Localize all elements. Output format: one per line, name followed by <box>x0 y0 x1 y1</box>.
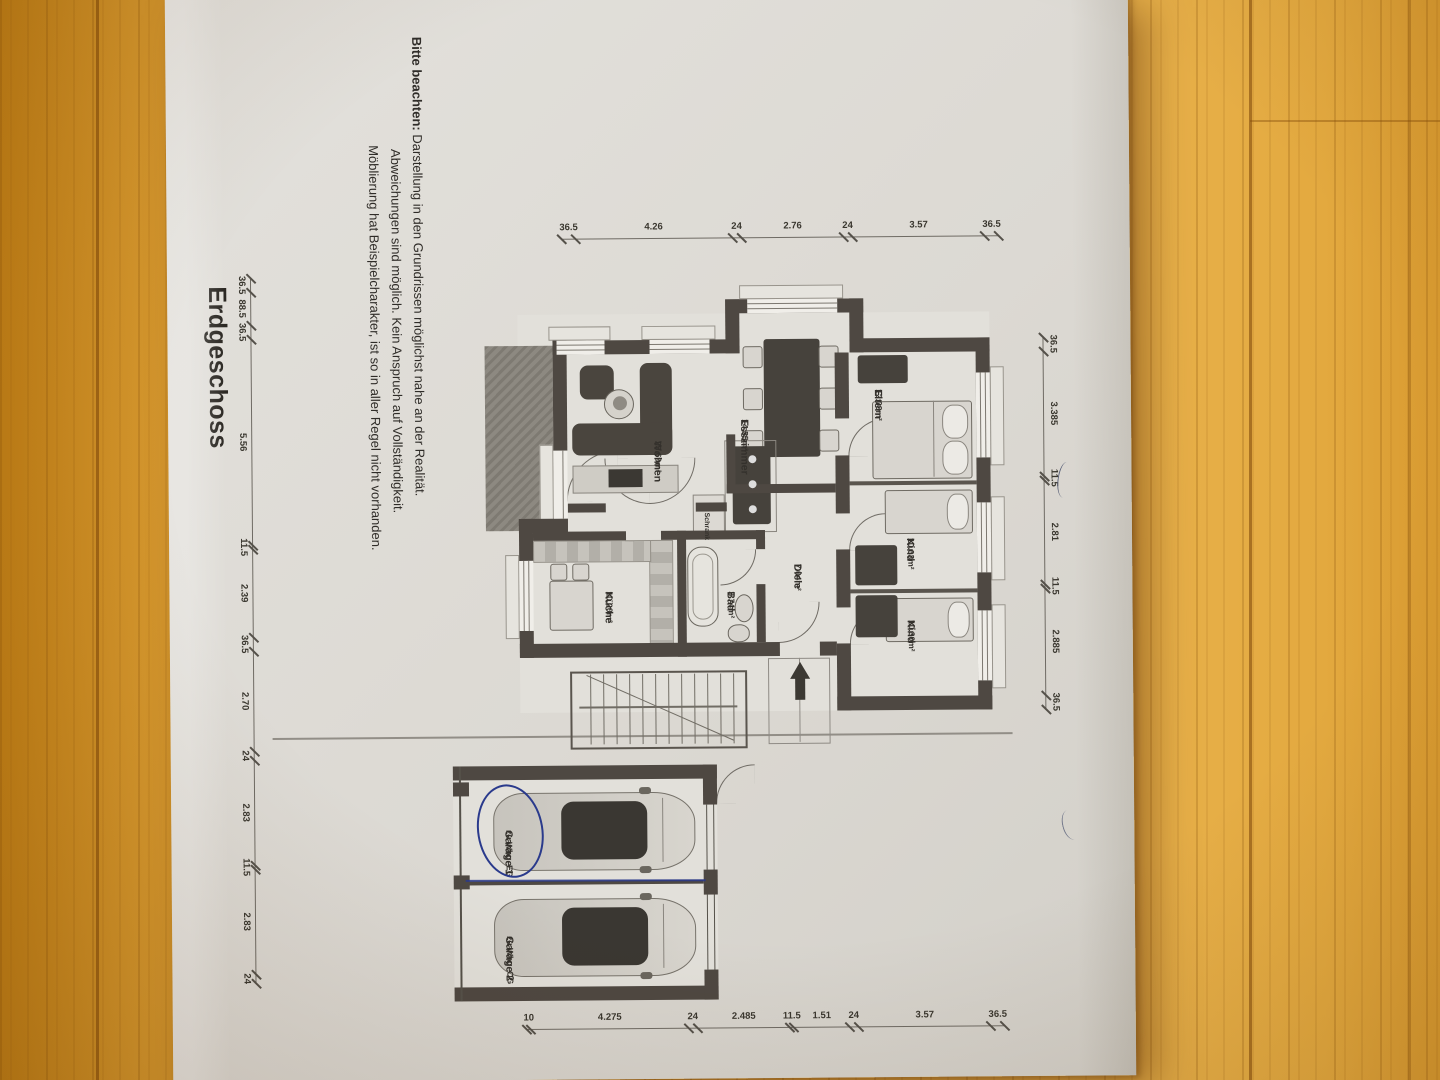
dim-label: 24 <box>731 221 742 232</box>
dim-label: 10 <box>523 1012 534 1023</box>
sideboard-dot <box>748 505 756 513</box>
wall <box>834 352 849 418</box>
dim-label: 24 <box>241 973 252 984</box>
desk <box>855 545 897 585</box>
window-sill <box>989 366 1004 465</box>
room-area: 12.08m² <box>873 389 882 421</box>
stair-tread <box>706 674 708 744</box>
wall <box>835 455 849 513</box>
disclaimer-bold: Bitte beachten: <box>409 37 425 131</box>
window <box>649 340 709 354</box>
window-sill <box>739 284 843 299</box>
wall <box>552 341 567 451</box>
window <box>975 372 990 457</box>
window-line <box>979 372 981 457</box>
window <box>556 340 604 354</box>
kitchen-table <box>549 580 593 630</box>
terrace-door <box>553 451 568 519</box>
kitchen-counter <box>649 540 674 645</box>
pillow <box>941 405 967 439</box>
toilet <box>727 624 749 642</box>
wall <box>532 531 625 541</box>
entry-arrow-head <box>790 662 810 679</box>
plant <box>612 396 626 410</box>
car-mirror <box>640 972 652 979</box>
stair-tread <box>693 674 695 744</box>
wall <box>849 337 989 352</box>
dim-label: 88.5 <box>236 299 247 318</box>
window-line <box>981 610 983 680</box>
garage-wall <box>454 985 718 1001</box>
garage-post <box>452 782 468 796</box>
dim-label: 11.5 <box>238 538 249 556</box>
wall <box>695 502 726 511</box>
garage-door-arc <box>715 764 754 803</box>
window <box>519 561 534 631</box>
dim-label: 2.485 <box>731 1011 755 1022</box>
pen-squiggle <box>1058 808 1082 841</box>
dim-label: 5.56 <box>237 433 248 452</box>
desk <box>855 595 897 637</box>
dim-label: 24 <box>239 750 250 761</box>
dim-label: 36.5 <box>1050 693 1061 712</box>
dim-line <box>249 278 256 983</box>
chair <box>742 388 762 410</box>
window-line <box>980 502 982 572</box>
room-name: Schrank <box>702 513 710 541</box>
dim-label: 2.83 <box>240 803 251 822</box>
dim-label: 2.83 <box>240 912 251 931</box>
stair-tread <box>628 674 630 744</box>
bathtub-inner <box>692 554 714 620</box>
window-sill <box>505 555 520 639</box>
dim-line <box>526 1025 1004 1030</box>
dim-label: 11.5 <box>1049 577 1060 595</box>
pen-squiggle <box>1055 461 1075 499</box>
pillow <box>947 602 969 638</box>
window-sill <box>539 445 554 527</box>
stair-tread <box>732 673 734 743</box>
wood-plank-joint <box>1250 120 1440 122</box>
wall <box>676 531 686 657</box>
window-line <box>985 502 987 572</box>
dim-label: 1.51 <box>812 1010 831 1021</box>
garage-wall <box>452 764 716 780</box>
dim-label: 2.76 <box>783 220 802 231</box>
window <box>976 502 991 572</box>
chair <box>572 563 589 580</box>
car-mirror <box>639 866 651 873</box>
stair-tread <box>654 674 656 744</box>
photo-of-floor-plan: Bitte beachten: Darstellung in den Grund… <box>0 0 1440 1080</box>
room-area: 14.55m² <box>739 419 748 451</box>
room-area: 23.69m² <box>653 441 662 473</box>
wood-plank-seam <box>1408 0 1411 1080</box>
garage-door <box>706 805 715 870</box>
dim-label: 36.5 <box>982 219 1001 230</box>
car-cabin <box>561 907 647 966</box>
dim-label: 3.57 <box>915 1009 934 1020</box>
wall <box>726 434 735 493</box>
dim-label: 2.39 <box>238 584 249 603</box>
disclaimer-line-1: Bitte beachten: Darstellung in den Grund… <box>409 37 428 497</box>
car-hood-line <box>661 798 663 862</box>
page-title: Erdgeschoss <box>202 286 232 449</box>
wall <box>849 298 863 352</box>
wall <box>725 313 734 339</box>
dim-label: 36.5 <box>988 1009 1007 1020</box>
dim-label: 4.26 <box>644 221 663 232</box>
dim-label: 36.5 <box>235 276 246 295</box>
garage-wall <box>703 869 717 894</box>
room-area: 7.04m² <box>793 564 802 591</box>
wall <box>567 503 605 512</box>
wood-plank-seam <box>1249 0 1252 1080</box>
window-sill <box>548 326 610 340</box>
wardrobe <box>857 355 907 383</box>
floor-plan-drawing: Bitte beachten: Darstellung in den Grund… <box>166 0 1134 1079</box>
wall <box>519 642 779 658</box>
kitchen-counter <box>533 540 651 563</box>
car-cabin <box>561 801 647 860</box>
dim-label: 24 <box>848 1010 859 1021</box>
chair <box>550 564 567 581</box>
floor-plan-paper: Bitte beachten: Darstellung in den Grund… <box>165 0 1137 1080</box>
dim-label: 11.5 <box>240 858 251 876</box>
stair-tread <box>602 674 604 744</box>
window-sill <box>990 496 1005 580</box>
disclaimer-line-3: Möblierung hat Beispielcharakter, ist so… <box>365 145 383 551</box>
dim-label: 2.70 <box>239 692 250 711</box>
window-line <box>562 451 564 519</box>
dim-label: 3.385 <box>1047 401 1058 425</box>
window <box>747 299 837 314</box>
room-area: 3.74m² <box>726 591 735 618</box>
pillow <box>946 494 968 530</box>
chair <box>819 430 839 452</box>
dim-label: 2.885 <box>1049 629 1060 653</box>
dim-label: 24 <box>842 220 853 231</box>
blanket-line <box>932 401 934 477</box>
wall <box>819 642 836 656</box>
chair <box>742 346 762 368</box>
dim-label: 24 <box>687 1011 698 1022</box>
window <box>977 610 992 680</box>
car-mirror <box>639 893 651 900</box>
wall <box>756 584 765 642</box>
stair-tread <box>589 674 591 744</box>
wall <box>836 549 850 607</box>
pillow <box>942 441 968 475</box>
wall <box>518 519 532 561</box>
wall <box>837 695 992 710</box>
window-line <box>984 372 986 457</box>
dim-label: 2.81 <box>1048 523 1059 542</box>
dim-line <box>561 235 998 240</box>
room-area: 10.20m² <box>604 591 613 623</box>
wood-plank-seam <box>96 0 99 1080</box>
dim-label: 3.57 <box>909 219 928 230</box>
disclaimer-rest: Darstellung in den Grundrissen möglichst… <box>409 131 427 497</box>
window-sill <box>641 325 715 340</box>
washbasin <box>734 594 753 622</box>
wall <box>726 484 835 494</box>
garage-door <box>706 895 715 970</box>
window-sill <box>991 604 1006 688</box>
car-hood-line <box>662 904 664 968</box>
stair-tread <box>680 674 682 744</box>
window-line <box>986 610 988 680</box>
window-line <box>528 561 530 631</box>
sideboard-dot <box>748 480 756 488</box>
car-mirror <box>638 787 650 794</box>
tv <box>608 469 642 487</box>
dim-label: 36.5 <box>236 323 247 342</box>
dim-line <box>1042 337 1046 709</box>
room-area: 10.30m² <box>906 620 915 652</box>
room-sub: zu Whg. OG <box>504 936 514 984</box>
stair-tread <box>641 674 643 744</box>
stair-tread <box>667 674 669 744</box>
dim-label: 4.275 <box>597 1012 621 1023</box>
wall <box>836 643 851 710</box>
disclaimer-line-2: Abweichungen sind möglich. Kein Anspruch… <box>387 149 405 513</box>
dim-label: 36.5 <box>1047 335 1058 354</box>
room-area: 10.03m² <box>905 538 914 570</box>
garage-wall <box>702 764 716 804</box>
dim-label: 11.5 <box>782 1010 800 1021</box>
window-line <box>523 561 525 631</box>
dim-label: 36.5 <box>238 635 249 654</box>
dim-label: 36.5 <box>559 222 578 233</box>
entry-arrow <box>795 678 805 700</box>
garage-post <box>453 875 469 889</box>
garage-wall <box>704 969 718 999</box>
stair-tread <box>615 674 617 744</box>
